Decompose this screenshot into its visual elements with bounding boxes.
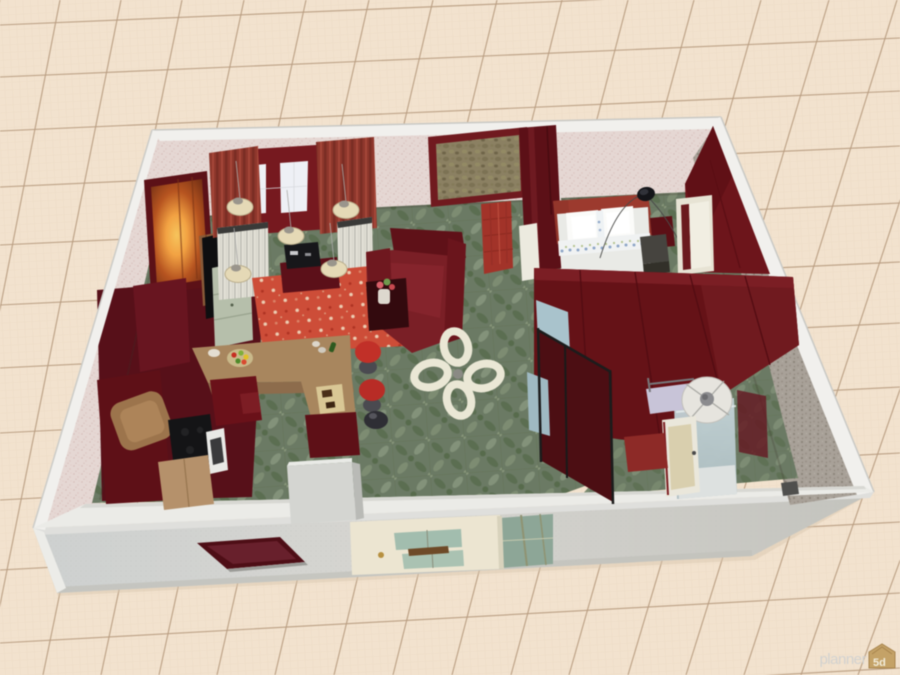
svg-text:5d: 5d bbox=[873, 657, 886, 669]
svg-text:planner: planner bbox=[819, 651, 866, 668]
